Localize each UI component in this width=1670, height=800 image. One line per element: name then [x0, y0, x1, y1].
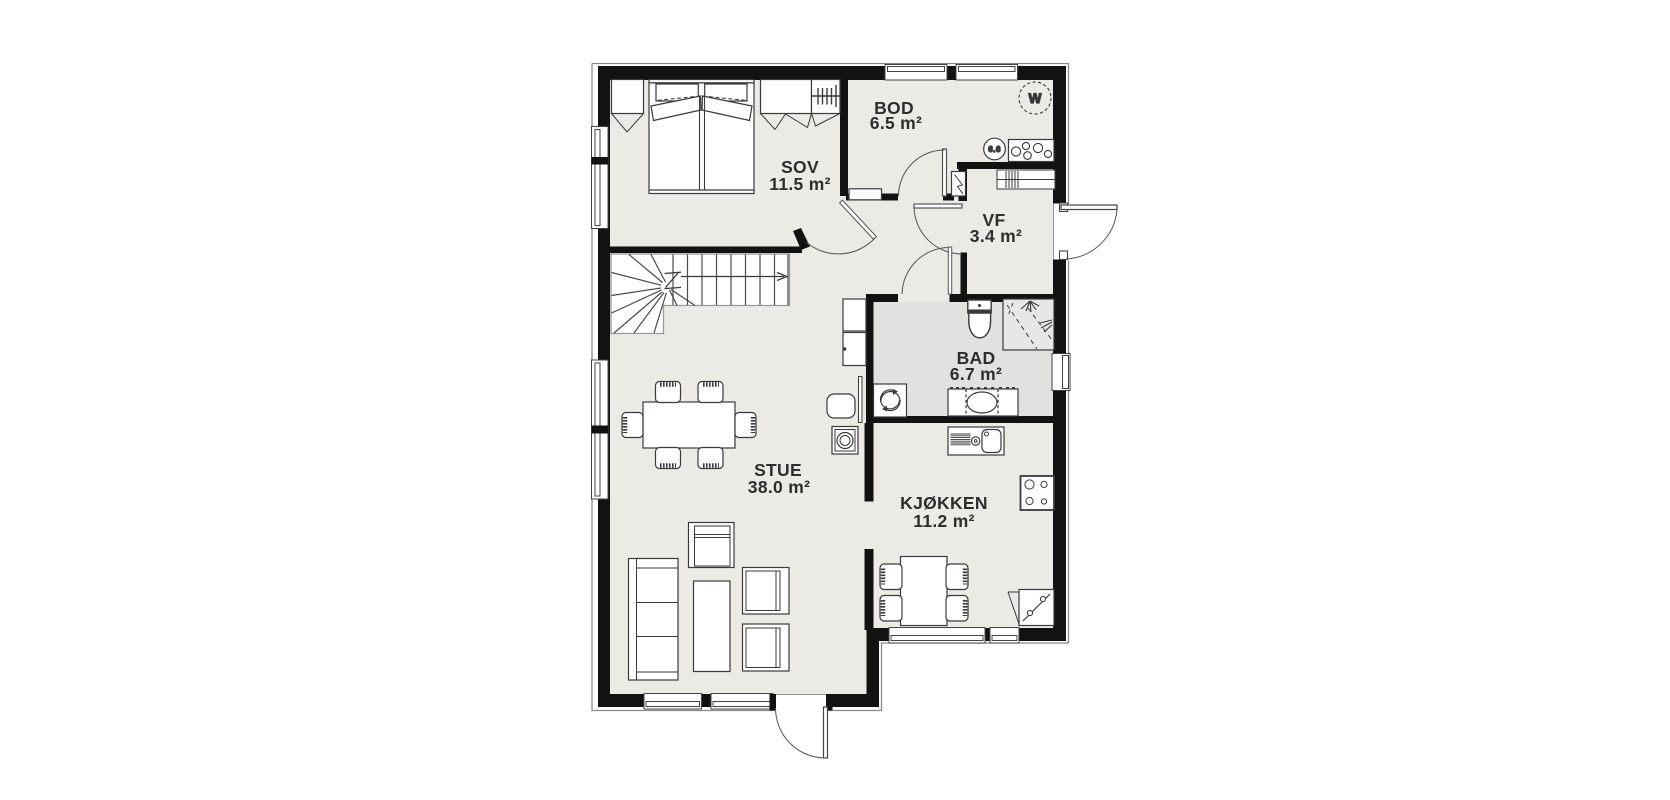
svg-text:KJØKKEN: KJØKKEN: [900, 493, 988, 513]
svg-text:11.2 m²: 11.2 m²: [913, 511, 974, 531]
svg-text:W: W: [1029, 91, 1042, 106]
svg-text:3.4 m²: 3.4 m²: [970, 226, 1022, 246]
svg-text:38.0 m²: 38.0 m²: [748, 477, 810, 497]
svg-text:6.5 m²: 6.5 m²: [870, 113, 922, 133]
svg-text:6.7 m²: 6.7 m²: [950, 364, 1002, 384]
svg-text:11.5 m²: 11.5 m²: [769, 174, 830, 194]
svg-text:6.6: 6.6: [988, 144, 1001, 154]
